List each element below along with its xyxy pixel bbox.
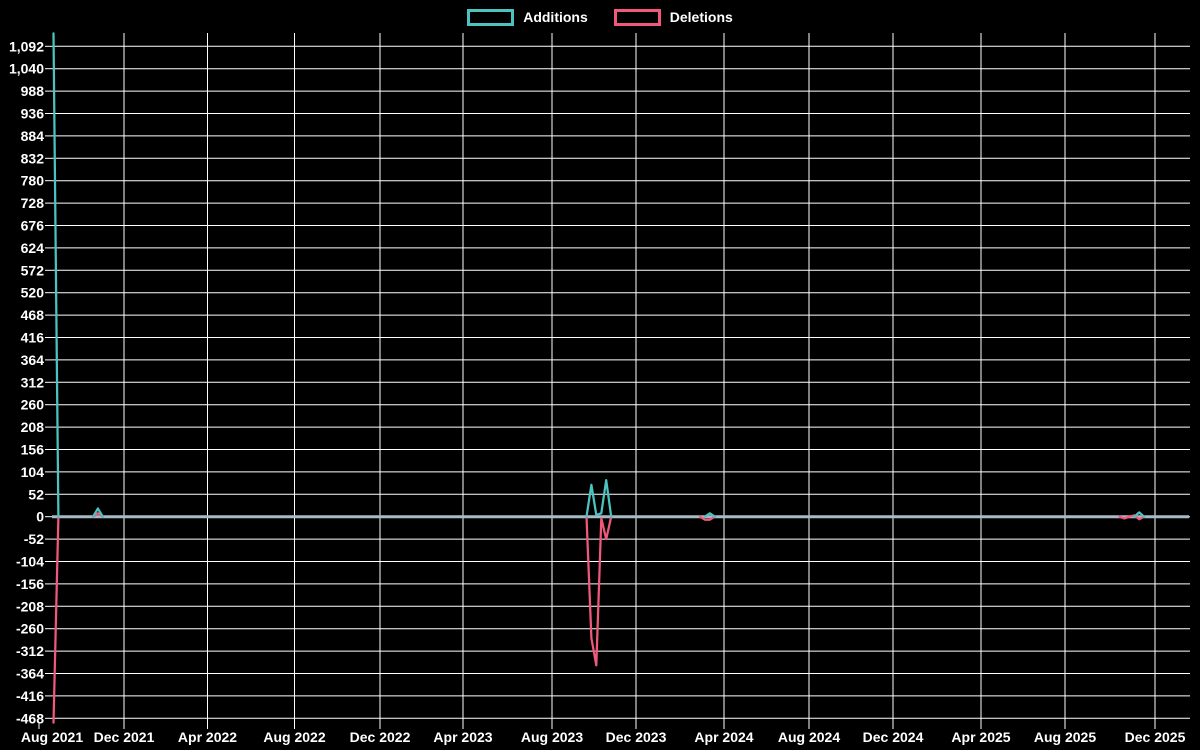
svg-text:0: 0 bbox=[36, 509, 44, 525]
svg-text:208: 208 bbox=[21, 419, 45, 435]
svg-text:Apr 2023: Apr 2023 bbox=[433, 729, 492, 745]
svg-text:936: 936 bbox=[21, 106, 45, 122]
legend-item-deletions[interactable]: Deletions bbox=[614, 8, 733, 26]
svg-text:-416: -416 bbox=[16, 688, 44, 704]
svg-text:Dec 2022: Dec 2022 bbox=[350, 729, 411, 745]
legend-label-deletions: Deletions bbox=[670, 8, 733, 26]
svg-text:Apr 2025: Apr 2025 bbox=[951, 729, 1010, 745]
svg-text:416: 416 bbox=[21, 330, 45, 346]
additions-swatch-icon bbox=[467, 9, 514, 26]
svg-text:728: 728 bbox=[21, 195, 45, 211]
svg-text:Apr 2022: Apr 2022 bbox=[178, 729, 237, 745]
svg-text:1,092: 1,092 bbox=[9, 38, 44, 54]
svg-text:-364: -364 bbox=[16, 666, 44, 682]
svg-text:Aug 2024: Aug 2024 bbox=[778, 729, 840, 745]
svg-text:Apr 2024: Apr 2024 bbox=[694, 729, 753, 745]
svg-text:988: 988 bbox=[21, 83, 45, 99]
code-frequency-chart: 1,0921,040988936884832780728676624572520… bbox=[0, 0, 1200, 750]
legend-item-additions[interactable]: Additions bbox=[467, 8, 588, 26]
svg-text:156: 156 bbox=[21, 442, 45, 458]
svg-text:-312: -312 bbox=[16, 643, 44, 659]
svg-text:-208: -208 bbox=[16, 598, 44, 614]
svg-text:780: 780 bbox=[21, 173, 45, 189]
svg-text:468: 468 bbox=[21, 307, 45, 323]
svg-text:-260: -260 bbox=[16, 621, 44, 637]
svg-text:Aug 2023: Aug 2023 bbox=[521, 729, 583, 745]
svg-text:52: 52 bbox=[28, 486, 44, 502]
svg-text:-104: -104 bbox=[16, 554, 44, 570]
svg-text:1,040: 1,040 bbox=[9, 61, 44, 77]
svg-text:676: 676 bbox=[21, 218, 45, 234]
svg-text:Aug 2022: Aug 2022 bbox=[263, 729, 325, 745]
svg-text:Dec 2025: Dec 2025 bbox=[1125, 729, 1186, 745]
svg-text:Aug 2025: Aug 2025 bbox=[1034, 729, 1096, 745]
svg-text:Dec 2024: Dec 2024 bbox=[863, 729, 924, 745]
svg-text:Dec 2021: Dec 2021 bbox=[94, 729, 155, 745]
svg-text:260: 260 bbox=[21, 397, 45, 413]
svg-text:364: 364 bbox=[21, 352, 45, 368]
svg-text:104: 104 bbox=[21, 464, 45, 480]
deletions-swatch-icon bbox=[614, 9, 661, 26]
svg-text:572: 572 bbox=[21, 262, 45, 278]
svg-text:312: 312 bbox=[21, 374, 45, 390]
svg-text:Aug 2021: Aug 2021 bbox=[21, 729, 83, 745]
y-axis-labels: 1,0921,040988936884832780728676624572520… bbox=[9, 38, 44, 726]
svg-text:832: 832 bbox=[21, 150, 45, 166]
svg-text:-156: -156 bbox=[16, 576, 44, 592]
svg-text:884: 884 bbox=[21, 128, 45, 144]
legend-label-additions: Additions bbox=[523, 8, 588, 26]
plot-area: 1,0921,040988936884832780728676624572520… bbox=[0, 0, 1200, 750]
svg-text:520: 520 bbox=[21, 285, 45, 301]
svg-text:Dec 2023: Dec 2023 bbox=[606, 729, 667, 745]
x-axis-labels: Aug 2021Dec 2021Apr 2022Aug 2022Dec 2022… bbox=[21, 729, 1186, 745]
y-gridlines bbox=[45, 46, 1190, 718]
svg-text:-468: -468 bbox=[16, 710, 44, 726]
svg-text:-52: -52 bbox=[24, 531, 44, 547]
svg-text:624: 624 bbox=[21, 240, 45, 256]
chart-legend: Additions Deletions bbox=[0, 8, 1200, 26]
